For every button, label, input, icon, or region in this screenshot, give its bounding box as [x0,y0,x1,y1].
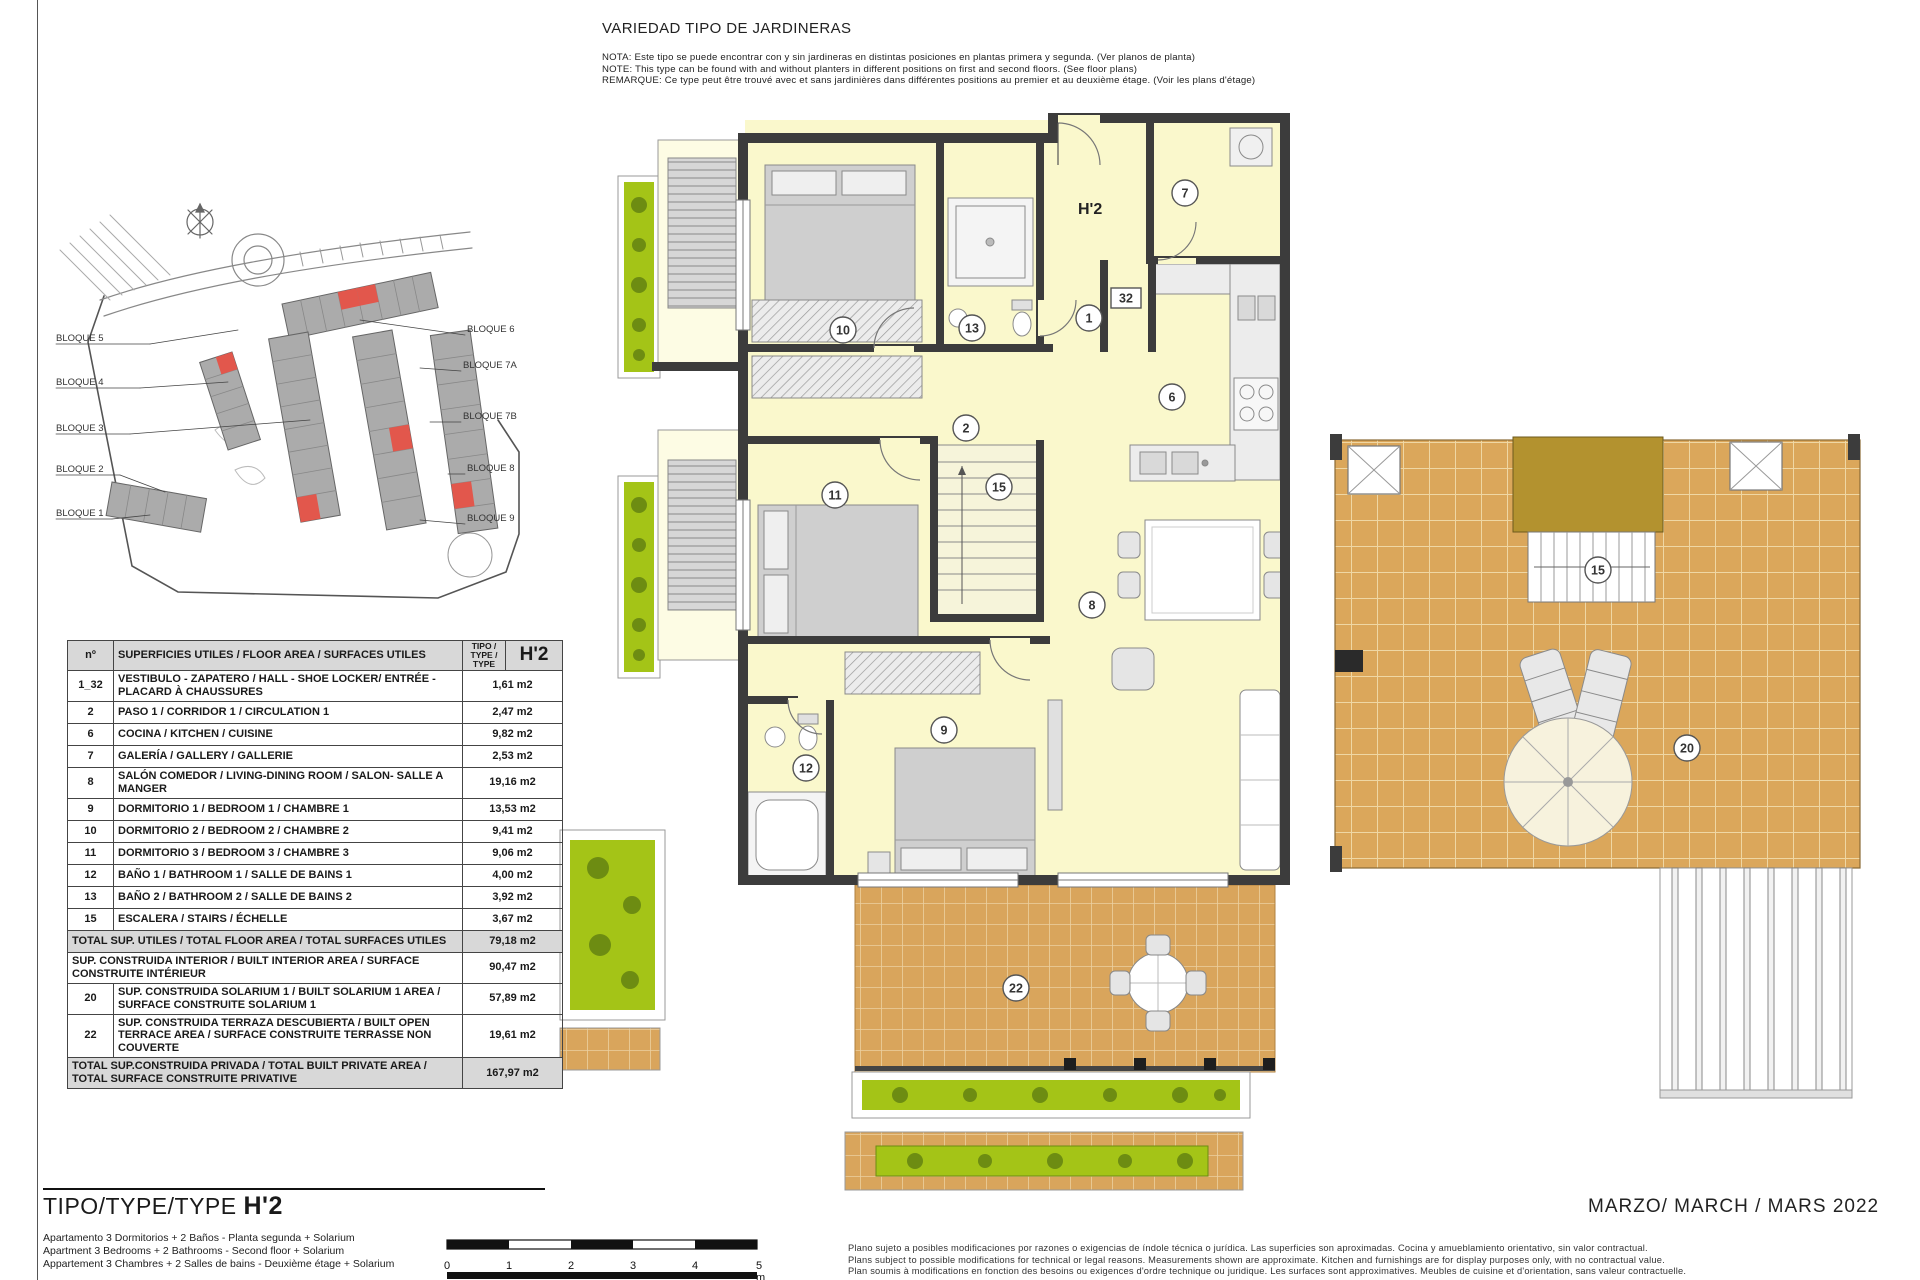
room-badge: 11 [828,489,841,503]
row-desc: DORMITORIO 3 / BEDROOM 3 / CHAMBRE 3 [114,842,463,864]
room-badge: 32 [1119,292,1133,306]
row-value: 19,16 m2 [463,767,563,798]
sheet-left-rule [37,0,38,1280]
row-desc: ESCALERA / STAIRS / ÉCHELLE [114,908,463,930]
row-desc: SUP. CONSTRUIDA INTERIOR / BUILT INTERIO… [68,952,463,983]
row-no: 1_32 [68,670,114,701]
header-notes: NOTA: Este tipo se puede encontrar con y… [602,52,1255,87]
row-desc: SUP. CONSTRUIDA SOLARIUM 1 / BUILT SOLAR… [114,983,463,1014]
block-label: BLOQUE 8 [467,463,515,474]
type-descriptions: Apartamento 3 Dormitorios + 2 Baños - Pl… [43,1232,394,1271]
row-desc: GALERÍA / GALLERY / GALLERIE [114,745,463,767]
row-value: 2,47 m2 [463,701,563,723]
type-title: TIPO/TYPE/TYPE H'2 [43,1192,283,1221]
room-badge: 10 [836,324,850,338]
block-label: BLOQUE 4 [56,377,104,388]
issue-date: MARZO/ MARCH / MARS 2022 [1588,1196,1879,1218]
room-badge: 15 [1591,564,1605,578]
row-desc: BAÑO 2 / BATHROOM 2 / SALLE DE BAINS 2 [114,886,463,908]
row-value: 19,61 m2 [463,1014,563,1058]
row-no: 2 [68,701,114,723]
pergola [1660,868,1852,1098]
row-value: 9,82 m2 [463,723,563,745]
row-no: 13 [68,886,114,908]
legal-disclaimer: Plano sujeto a posibles modificaciones p… [848,1243,1882,1278]
type-title-label: TIPO/TYPE/TYPE [43,1193,237,1219]
room-badge: 20 [1680,742,1694,756]
row-value: 3,67 m2 [463,908,563,930]
row-desc: TOTAL SUP. UTILES / TOTAL FLOOR AREA / T… [68,930,463,952]
row-no: 22 [68,1014,114,1058]
room-badge: 7 [1182,187,1189,201]
solarium-plan: 15 20 [1330,434,1860,1098]
col-header-type-code: H'2 [506,641,563,671]
row-no: 15 [68,908,114,930]
row-desc: DORMITORIO 2 / BEDROOM 2 / CHAMBRE 2 [114,820,463,842]
scale-tick: 2 [568,1260,574,1272]
table-row: SUP. CONSTRUIDA INTERIOR / BUILT INTERIO… [68,952,563,983]
room-badge: 13 [965,322,979,336]
table-row: 12BAÑO 1 / BATHROOM 1 / SALLE DE BAINS 1… [68,864,563,886]
room-badge: 2 [963,422,970,436]
compass-icon [187,204,213,238]
room-badge: 1 [1086,312,1093,326]
table-row: 2PASO 1 / CORRIDOR 1 / CIRCULATION 12,47… [68,701,563,723]
row-desc: BAÑO 1 / BATHROOM 1 / SALLE DE BAINS 1 [114,864,463,886]
type-desc-en: Apartment 3 Bedrooms + 2 Bathrooms - Sec… [43,1245,394,1258]
footer-divider [43,1188,545,1190]
building-row [106,272,498,533]
block-label: BLOQUE 7B [463,411,517,422]
table-header-row: nº SUPERFICIES UTILES / FLOOR AREA / SUR… [68,641,563,671]
page-title: VARIEDAD TIPO DE JARDINERAS [602,20,851,37]
note-line-en: NOTE: This type can be found with and wi… [602,64,1255,76]
block-label: BLOQUE 6 [467,324,515,335]
block-label: BLOQUE 7A [463,360,518,371]
room-badge: 15 [992,481,1006,495]
row-value: 3,92 m2 [463,886,563,908]
col-header-desc: SUPERFICIES UTILES / FLOOR AREA / SURFAC… [114,641,463,671]
row-value: 167,97 m2 [463,1058,563,1089]
scale-tick: 3 [630,1260,636,1272]
table-row: 9DORMITORIO 1 / BEDROOM 1 / CHAMBRE 113,… [68,798,563,820]
table-total-row: TOTAL SUP.CONSTRUIDA PRIVADA / TOTAL BUI… [68,1058,563,1089]
row-desc: DORMITORIO 1 / BEDROOM 1 / CHAMBRE 1 [114,798,463,820]
scale-tick: 4 [692,1260,698,1272]
scale-bar [447,1240,757,1279]
table-row: 13BAÑO 2 / BATHROOM 2 / SALLE DE BAINS 2… [68,886,563,908]
row-value: 90,47 m2 [463,952,563,983]
plan-sheet: BLOQUE 5 BLOQUE 4 BLOQUE 3 BLOQUE 2 BLOQ… [0,0,1920,1280]
row-desc: TOTAL SUP.CONSTRUIDA PRIVADA / TOTAL BUI… [68,1058,463,1089]
row-value: 57,89 m2 [463,983,563,1014]
type-desc-fr: Appartement 3 Chambres + 2 Salles de bai… [43,1258,394,1271]
room-badge: 12 [799,762,813,776]
row-no: 11 [68,842,114,864]
unit-label: H'2 [1078,201,1102,218]
disclaimer-es: Plano sujeto a posibles modificaciones p… [848,1243,1882,1255]
room-badge: 6 [1169,391,1176,405]
row-desc: PASO 1 / CORRIDOR 1 / CIRCULATION 1 [114,701,463,723]
table-row: 15ESCALERA / STAIRS / ÉCHELLE3,67 m2 [68,908,563,930]
table-row: 11DORMITORIO 3 / BEDROOM 3 / CHAMBRE 39,… [68,842,563,864]
scale-tick: 5 m [756,1260,770,1280]
floor-plan: H'2 10 13 1 32 7 6 2 15 11 8 9 12 22 [560,113,1290,1190]
block-label: BLOQUE 9 [467,513,515,524]
block-label: BLOQUE 2 [56,464,104,475]
col-header-tipo: TIPO / TYPE / TYPE [463,641,506,671]
row-value: 2,53 m2 [463,745,563,767]
row-no: 12 [68,864,114,886]
table-row: 1_32VESTIBULO - ZAPATERO / HALL - SHOE L… [68,670,563,701]
block-label: BLOQUE 1 [56,508,104,519]
row-no: 10 [68,820,114,842]
scale-tick: 1 [506,1260,512,1272]
col-header-no: nº [68,641,114,671]
table-total-row: TOTAL SUP. UTILES / TOTAL FLOOR AREA / T… [68,930,563,952]
site-plan: BLOQUE 5 BLOQUE 4 BLOQUE 3 BLOQUE 2 BLOQ… [56,204,519,598]
row-no: 9 [68,798,114,820]
type-title-code: H'2 [244,1192,283,1220]
row-value: 4,00 m2 [463,864,563,886]
table-row: 6COCINA / KITCHEN / CUISINE9,82 m2 [68,723,563,745]
room-badge: 22 [1009,982,1023,996]
table-row: 7GALERÍA / GALLERY / GALLERIE2,53 m2 [68,745,563,767]
block-label: BLOQUE 5 [56,333,104,344]
row-desc: SUP. CONSTRUIDA TERRAZA DESCUBIERTA / BU… [114,1014,463,1058]
disclaimer-fr: Plan soumis à modifications en fonction … [848,1266,1882,1278]
row-no: 20 [68,983,114,1014]
room-badge: 9 [941,724,948,738]
table-row: 20SUP. CONSTRUIDA SOLARIUM 1 / BUILT SOL… [68,983,563,1014]
row-value: 13,53 m2 [463,798,563,820]
table-row: 10DORMITORIO 2 / BEDROOM 2 / CHAMBRE 29,… [68,820,563,842]
row-value: 79,18 m2 [463,930,563,952]
room-badge: 8 [1089,599,1096,613]
row-value: 9,06 m2 [463,842,563,864]
note-line-es: NOTA: Este tipo se puede encontrar con y… [602,52,1255,64]
table-row: 8SALÓN COMEDOR / LIVING-DINING ROOM / SA… [68,767,563,798]
type-desc-es: Apartamento 3 Dormitorios + 2 Baños - Pl… [43,1232,394,1245]
table-row: 22SUP. CONSTRUIDA TERRAZA DESCUBIERTA / … [68,1014,563,1058]
row-no: 6 [68,723,114,745]
note-line-fr: REMARQUE: Ce type peut être trouvé avec … [602,75,1255,87]
row-no: 8 [68,767,114,798]
disclaimer-en: Plans subject to possible modifications … [848,1255,1882,1267]
row-value: 1,61 m2 [463,670,563,701]
row-no: 7 [68,745,114,767]
parasol [1504,718,1632,846]
scale-tick: 0 [444,1260,450,1272]
row-desc: COCINA / KITCHEN / CUISINE [114,723,463,745]
block-label: BLOQUE 3 [56,423,104,434]
row-desc: SALÓN COMEDOR / LIVING-DINING ROOM / SAL… [114,767,463,798]
row-value: 9,41 m2 [463,820,563,842]
area-table: nº SUPERFICIES UTILES / FLOOR AREA / SUR… [67,640,563,1089]
row-desc: VESTIBULO - ZAPATERO / HALL - SHOE LOCKE… [114,670,463,701]
